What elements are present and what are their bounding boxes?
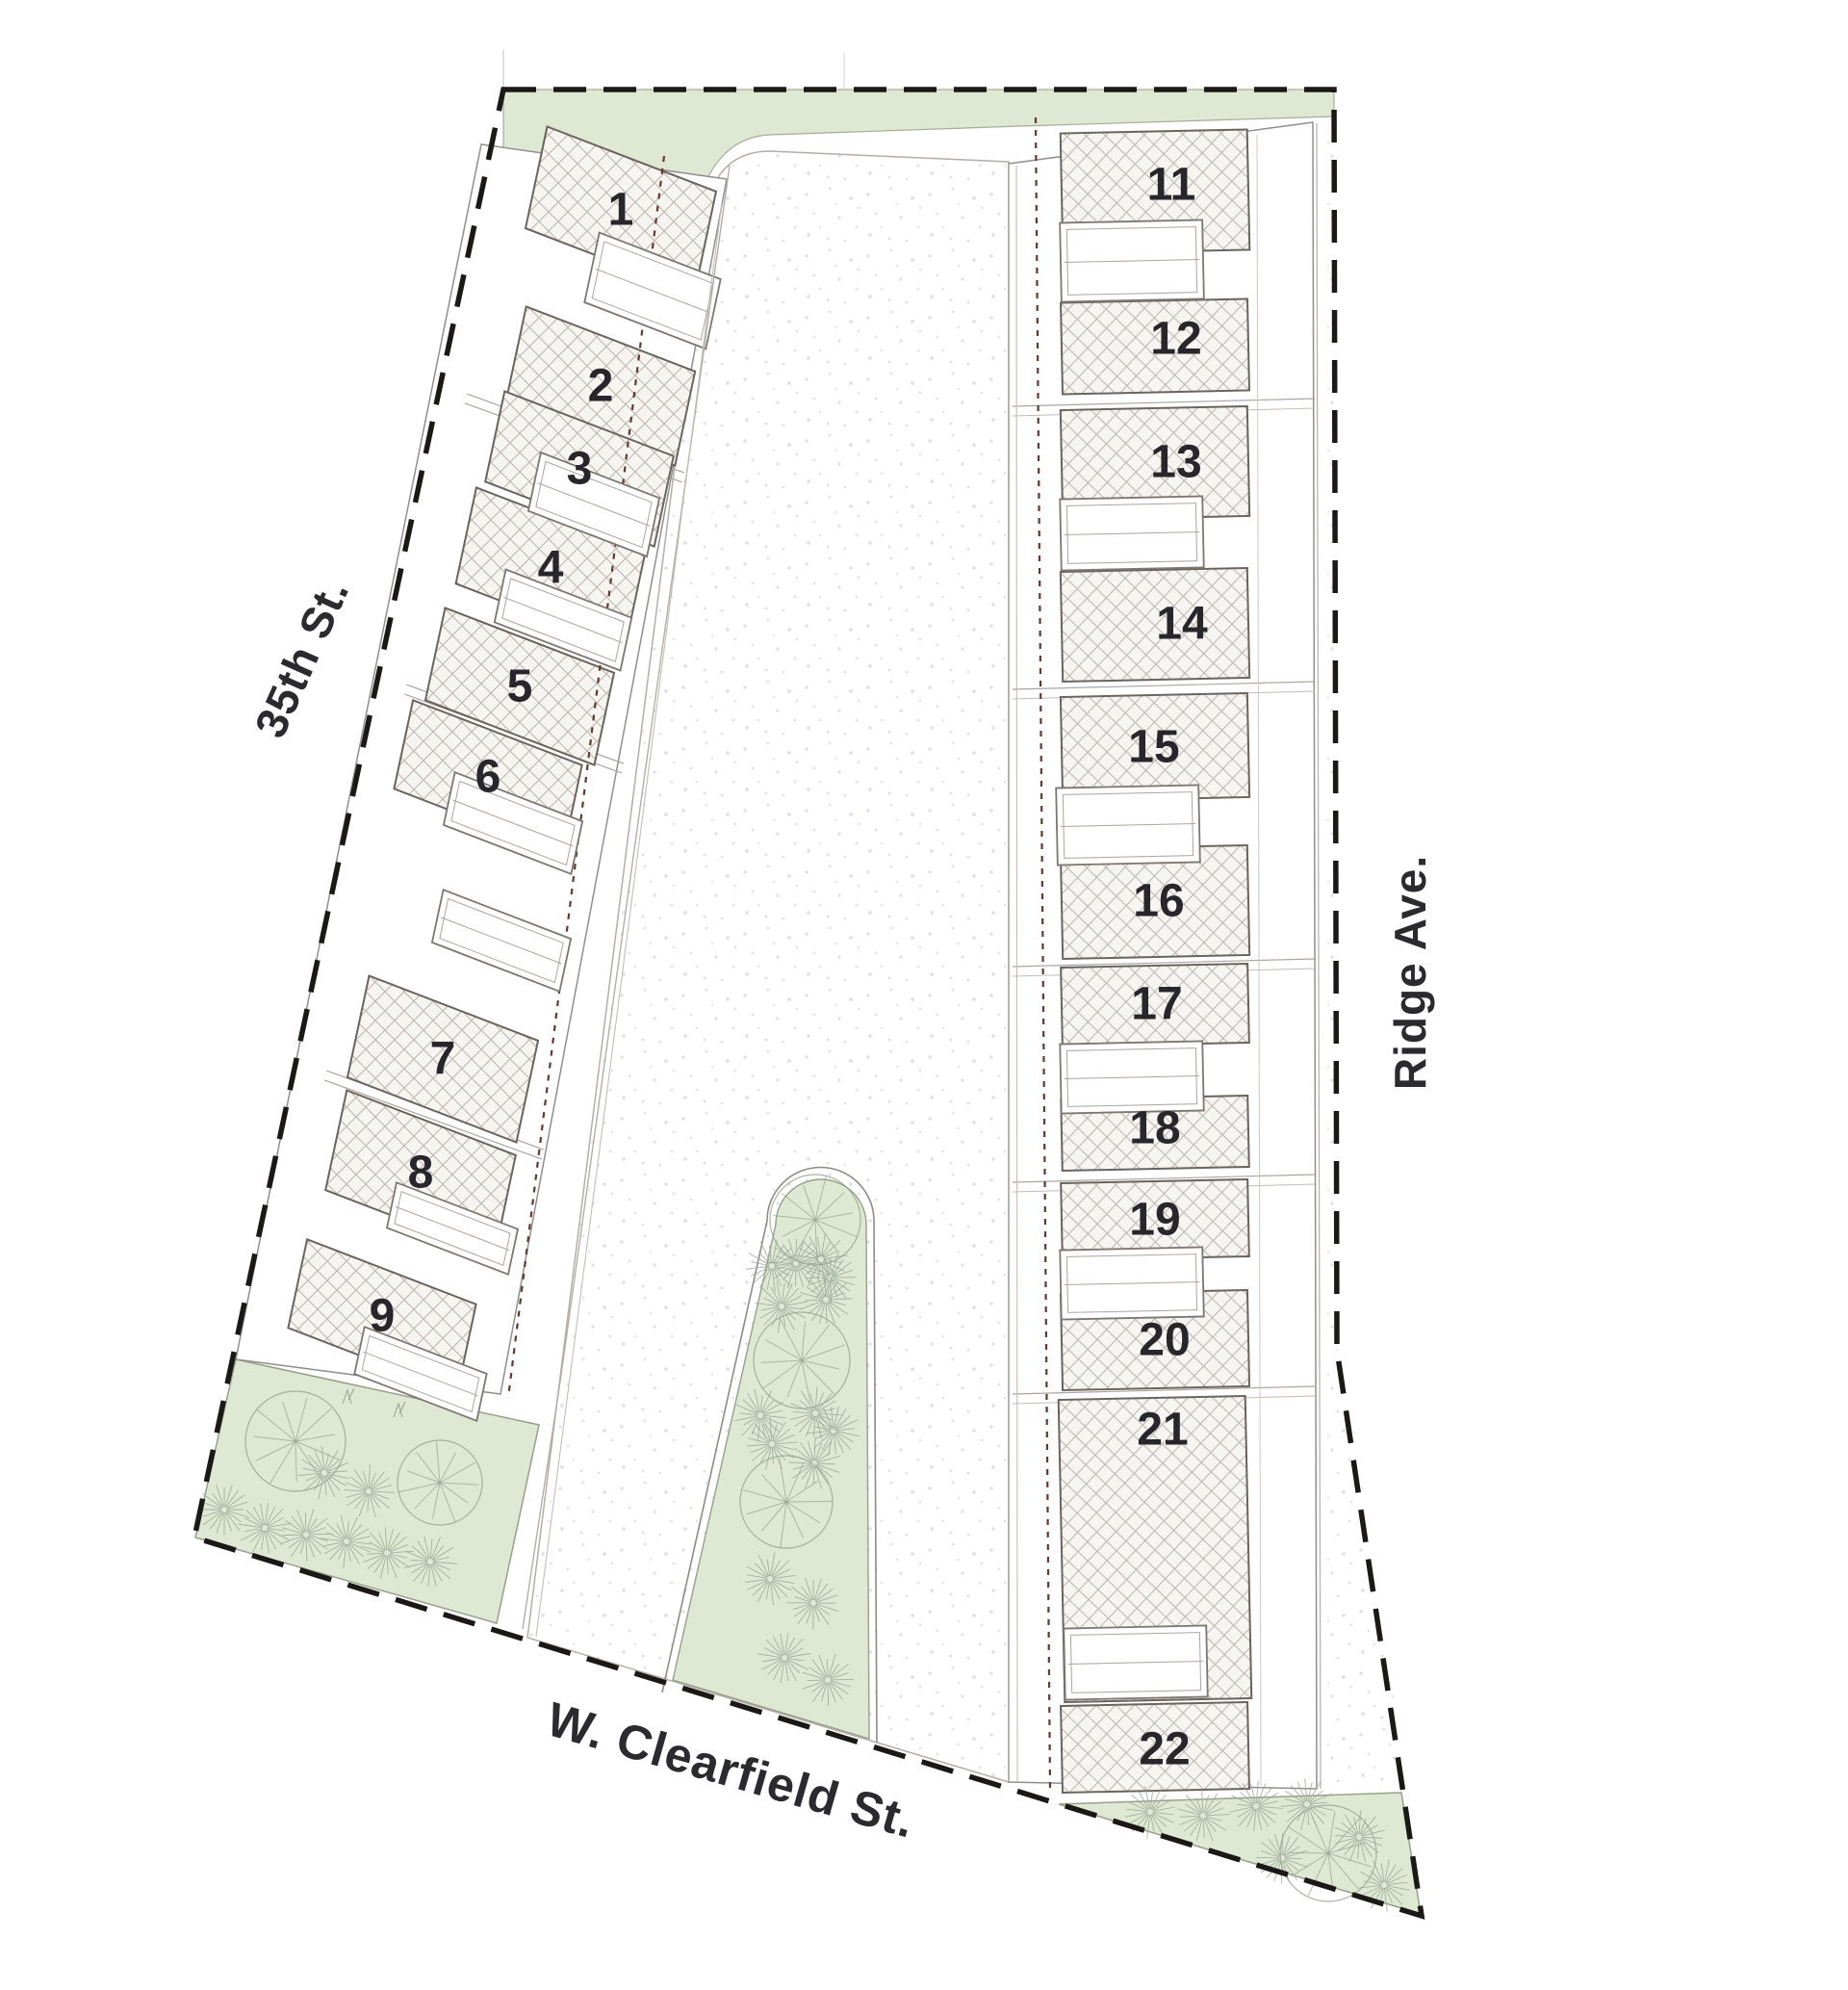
lot-number-15: 15 (1128, 722, 1179, 773)
lot-number-14: 14 (1156, 599, 1208, 650)
lot-number-17: 17 (1131, 979, 1182, 1030)
lot-number-7: 7 (430, 1034, 456, 1085)
lot-number-4: 4 (538, 543, 564, 594)
lot-number-2: 2 (588, 361, 614, 412)
lot-number-18: 18 (1129, 1103, 1180, 1154)
lot-number-3: 3 (567, 444, 593, 495)
street-label-east: Ridge Ave. (1385, 855, 1435, 1090)
lot-hatch-14 (1061, 568, 1249, 682)
street-label-west: 35th St. (244, 571, 358, 744)
east-parcel-inner-edge (1317, 123, 1321, 1789)
lot-number-16: 16 (1133, 876, 1184, 927)
lot-number-5: 5 (507, 661, 533, 712)
lot-number-11: 11 (1147, 160, 1196, 211)
lot-number-13: 13 (1150, 437, 1201, 488)
green-lawn-southwest (195, 1359, 539, 1623)
lot-number-20: 20 (1139, 1315, 1190, 1366)
lot-number-12: 12 (1150, 314, 1201, 365)
green-triangle-southeast (1059, 1793, 1421, 1914)
lot-number-22: 22 (1139, 1724, 1190, 1775)
lot-number-1: 1 (608, 185, 634, 236)
lot-number-6: 6 (475, 752, 501, 803)
lot-number-9: 9 (370, 1291, 396, 1342)
site-plan-drawing: 35th St. Ridge Ave. W. Clearfield St. 12… (0, 0, 1848, 1990)
lot-number-19: 19 (1129, 1195, 1180, 1246)
site-plan-page: 35th St. Ridge Ave. W. Clearfield St. 12… (0, 0, 1848, 1990)
lot-number-8: 8 (408, 1148, 434, 1199)
lot-number-21: 21 (1137, 1405, 1188, 1456)
